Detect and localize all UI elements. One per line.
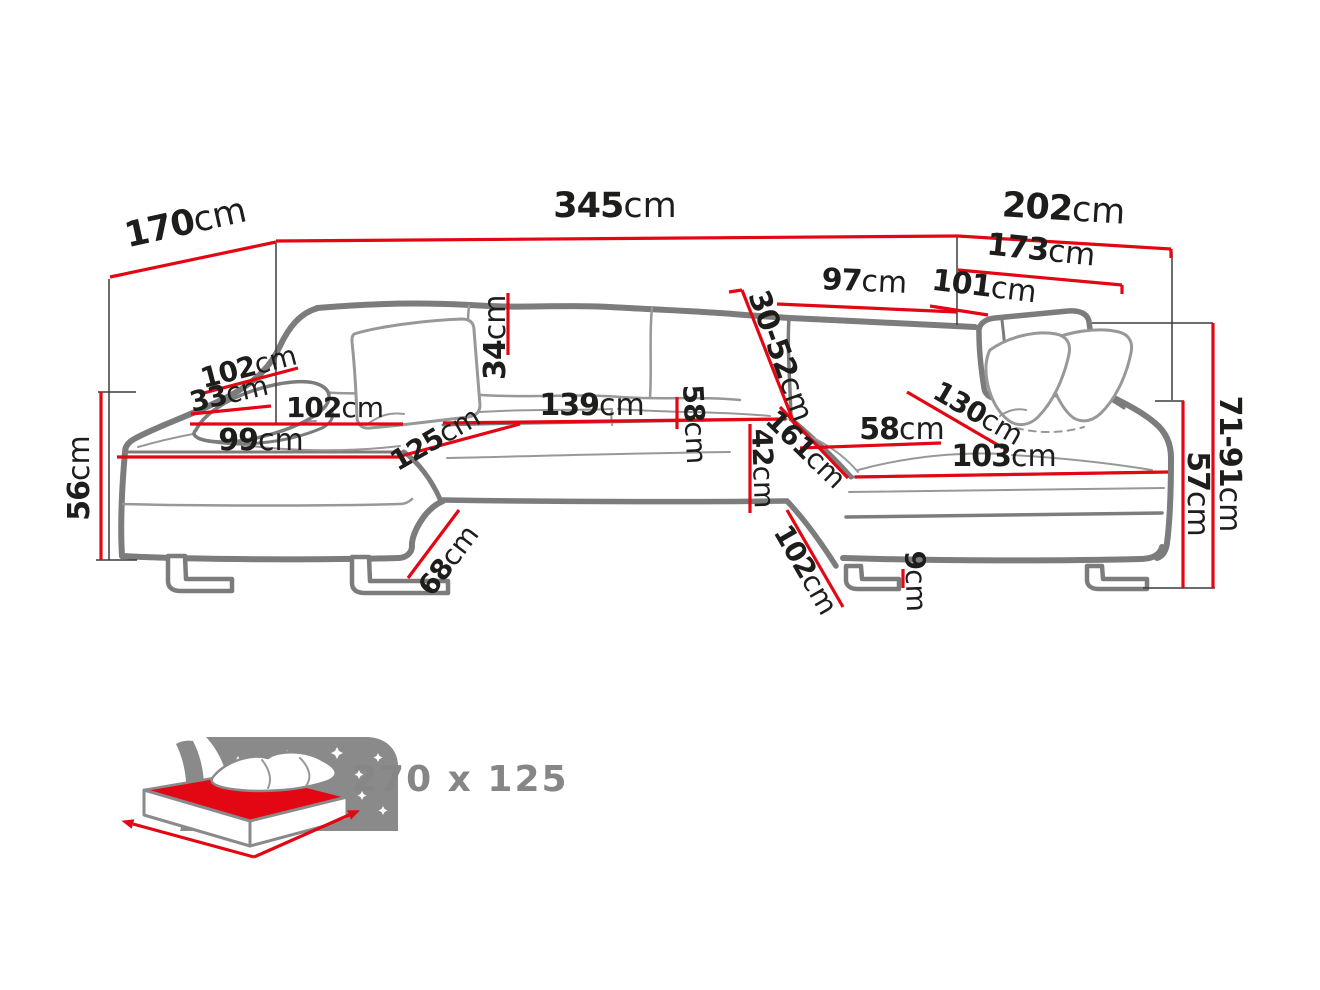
dim-label-103: 103cm [951,439,1056,474]
dim-label-139: 139cm [539,388,644,423]
dim-label-34: 34cm [478,295,513,380]
dim-label-345: 345cm [553,186,676,226]
sofa-leg-right-inner [846,566,899,589]
dim-label-56: 56cm [62,435,97,520]
sofa-right-chaise-seam-1 [849,488,1164,492]
sleep-icon-arrowhead-left [121,819,134,829]
sleeping-bed-icon: 270 x 125 [121,737,568,857]
dim-label-170: 170cm [121,190,250,256]
diagram-canvas: 170cm 345cm 202cm 173cm 97cm 101cm 30-52… [0,0,1320,990]
sofa-backrest-seam-2 [650,308,652,398]
dim-label-101: 101cm [930,263,1039,311]
dim-label-9: 9cm [898,550,933,612]
dim-line-97 [777,304,957,312]
dim-label-202: 202cm [1001,185,1127,232]
dim-label-102-left-seat: 102cm [286,391,384,424]
dim-label-58-middle: 58cm [676,384,713,465]
sofa-right-chaise-bottom-edge [843,547,1162,560]
dim-label-102-bottom: 102cm [767,519,845,620]
dim-label-58-right: 58cm [859,412,944,447]
sofa-dimension-diagram: 170cm 345cm 202cm 173cm 97cm 101cm 30-52… [0,0,1320,990]
dim-tick-30-52 [729,290,742,292]
dim-label-173: 173cm [985,226,1097,273]
sofa-right-chaise-seam-2 [846,513,1162,517]
sofa-left-chaise-bottom-edge [122,501,443,559]
sofa-middle-bottom-edge [443,500,787,502]
sleeping-size-label: 270 x 125 [352,759,569,800]
dim-label-99: 99cm [218,423,303,458]
dim-label-57: 57cm [1180,451,1215,536]
dim-line-345 [276,236,958,241]
sofa-left-chaise-seam [123,499,412,506]
dim-label-71-91: 71-91cm [1212,396,1247,533]
sofa-leg-right-outer [1087,566,1147,589]
dim-label-97: 97cm [821,262,908,301]
